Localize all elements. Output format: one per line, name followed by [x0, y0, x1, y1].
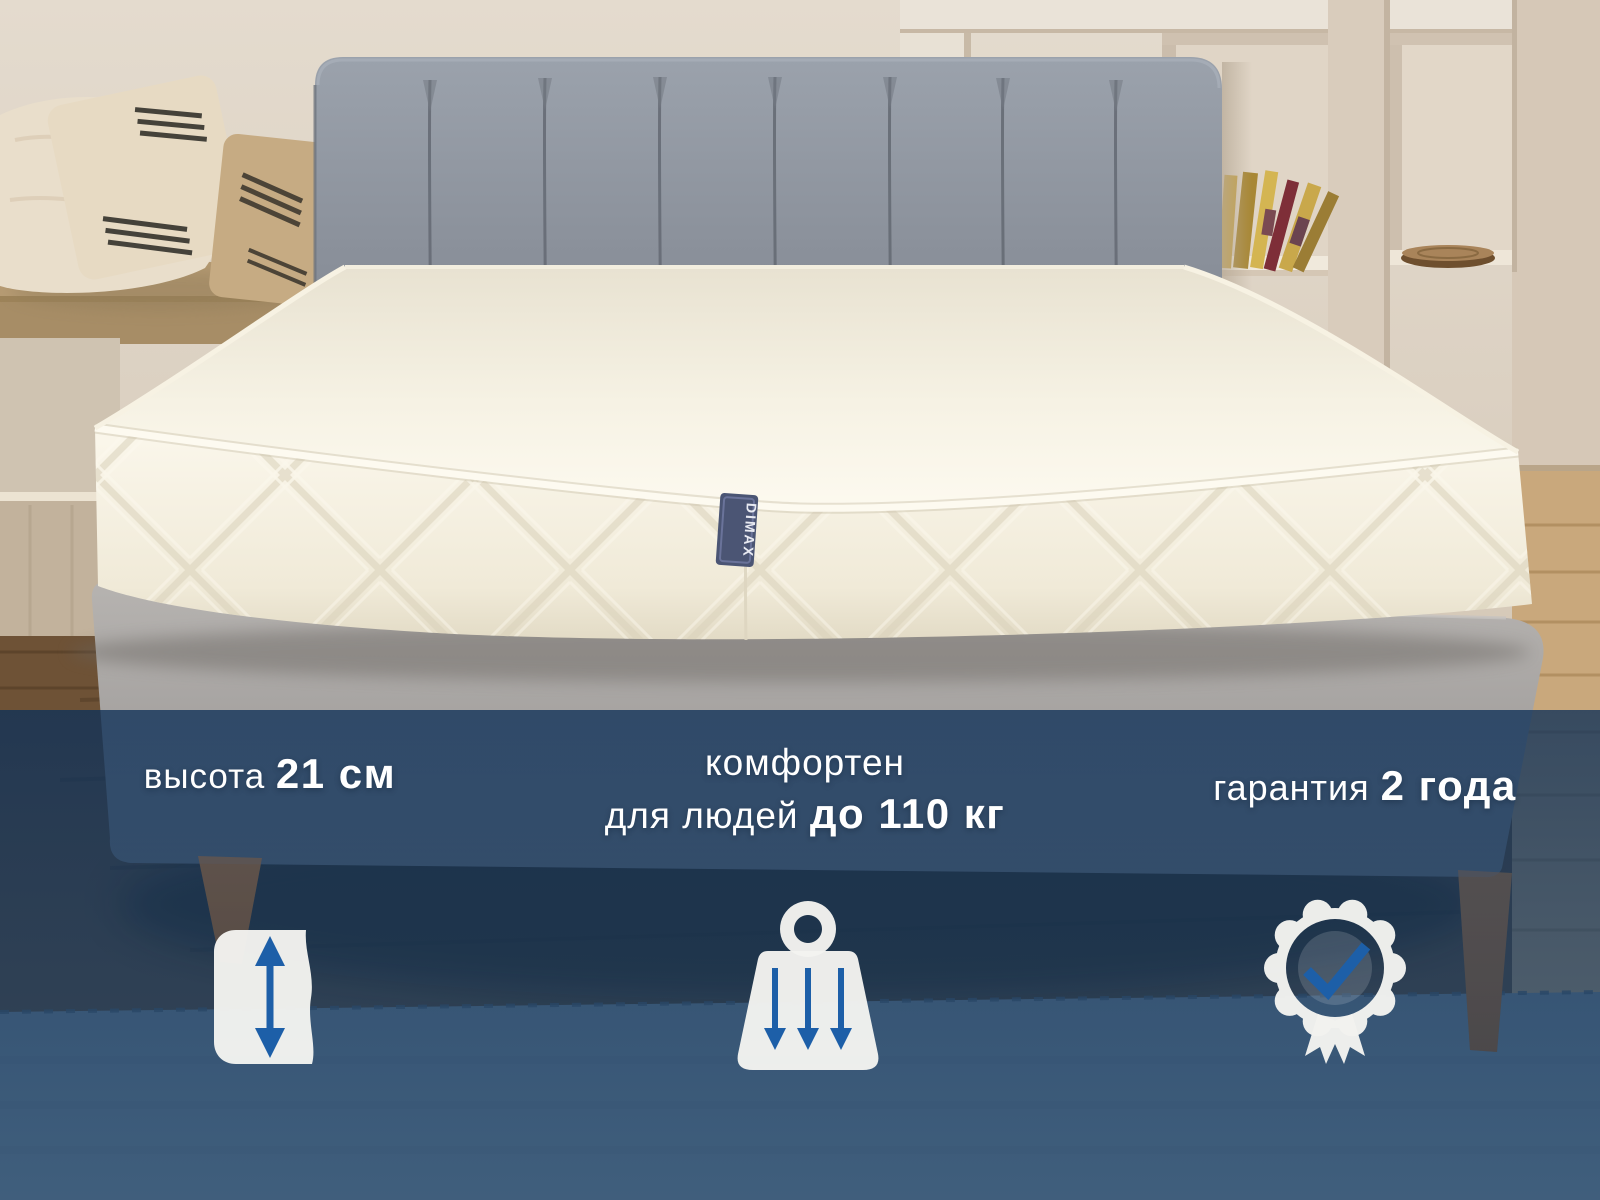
height-caption: высота 21 см — [80, 750, 460, 798]
warranty-caption-value: 2 года — [1381, 762, 1517, 809]
comfort-caption-line1: комфортен — [590, 737, 1020, 788]
comfort-caption-line2-value: до 110 кг — [810, 790, 1005, 837]
warranty-caption: гарантия 2 года — [1160, 762, 1570, 810]
comfort-caption: комфортен для людей до 110 кг — [590, 737, 1020, 841]
height-caption-label: высота — [144, 757, 276, 796]
comfort-caption-line2-label: для людей — [605, 795, 810, 836]
wood-disc — [1401, 245, 1495, 268]
warranty-caption-label: гарантия — [1213, 767, 1380, 808]
mattress-height-icon — [208, 924, 344, 1070]
max-weight-icon — [723, 898, 893, 1078]
brand-tag: DIMAX — [716, 493, 761, 568]
height-caption-value: 21 см — [276, 750, 396, 797]
weight-handle-icon — [780, 901, 836, 957]
pressure-arrows-icon — [764, 968, 852, 1050]
warranty-badge-icon — [1260, 890, 1410, 1075]
product-infographic-image: DIMAX высота 21 см комфортен для людей д… — [0, 0, 1600, 1200]
